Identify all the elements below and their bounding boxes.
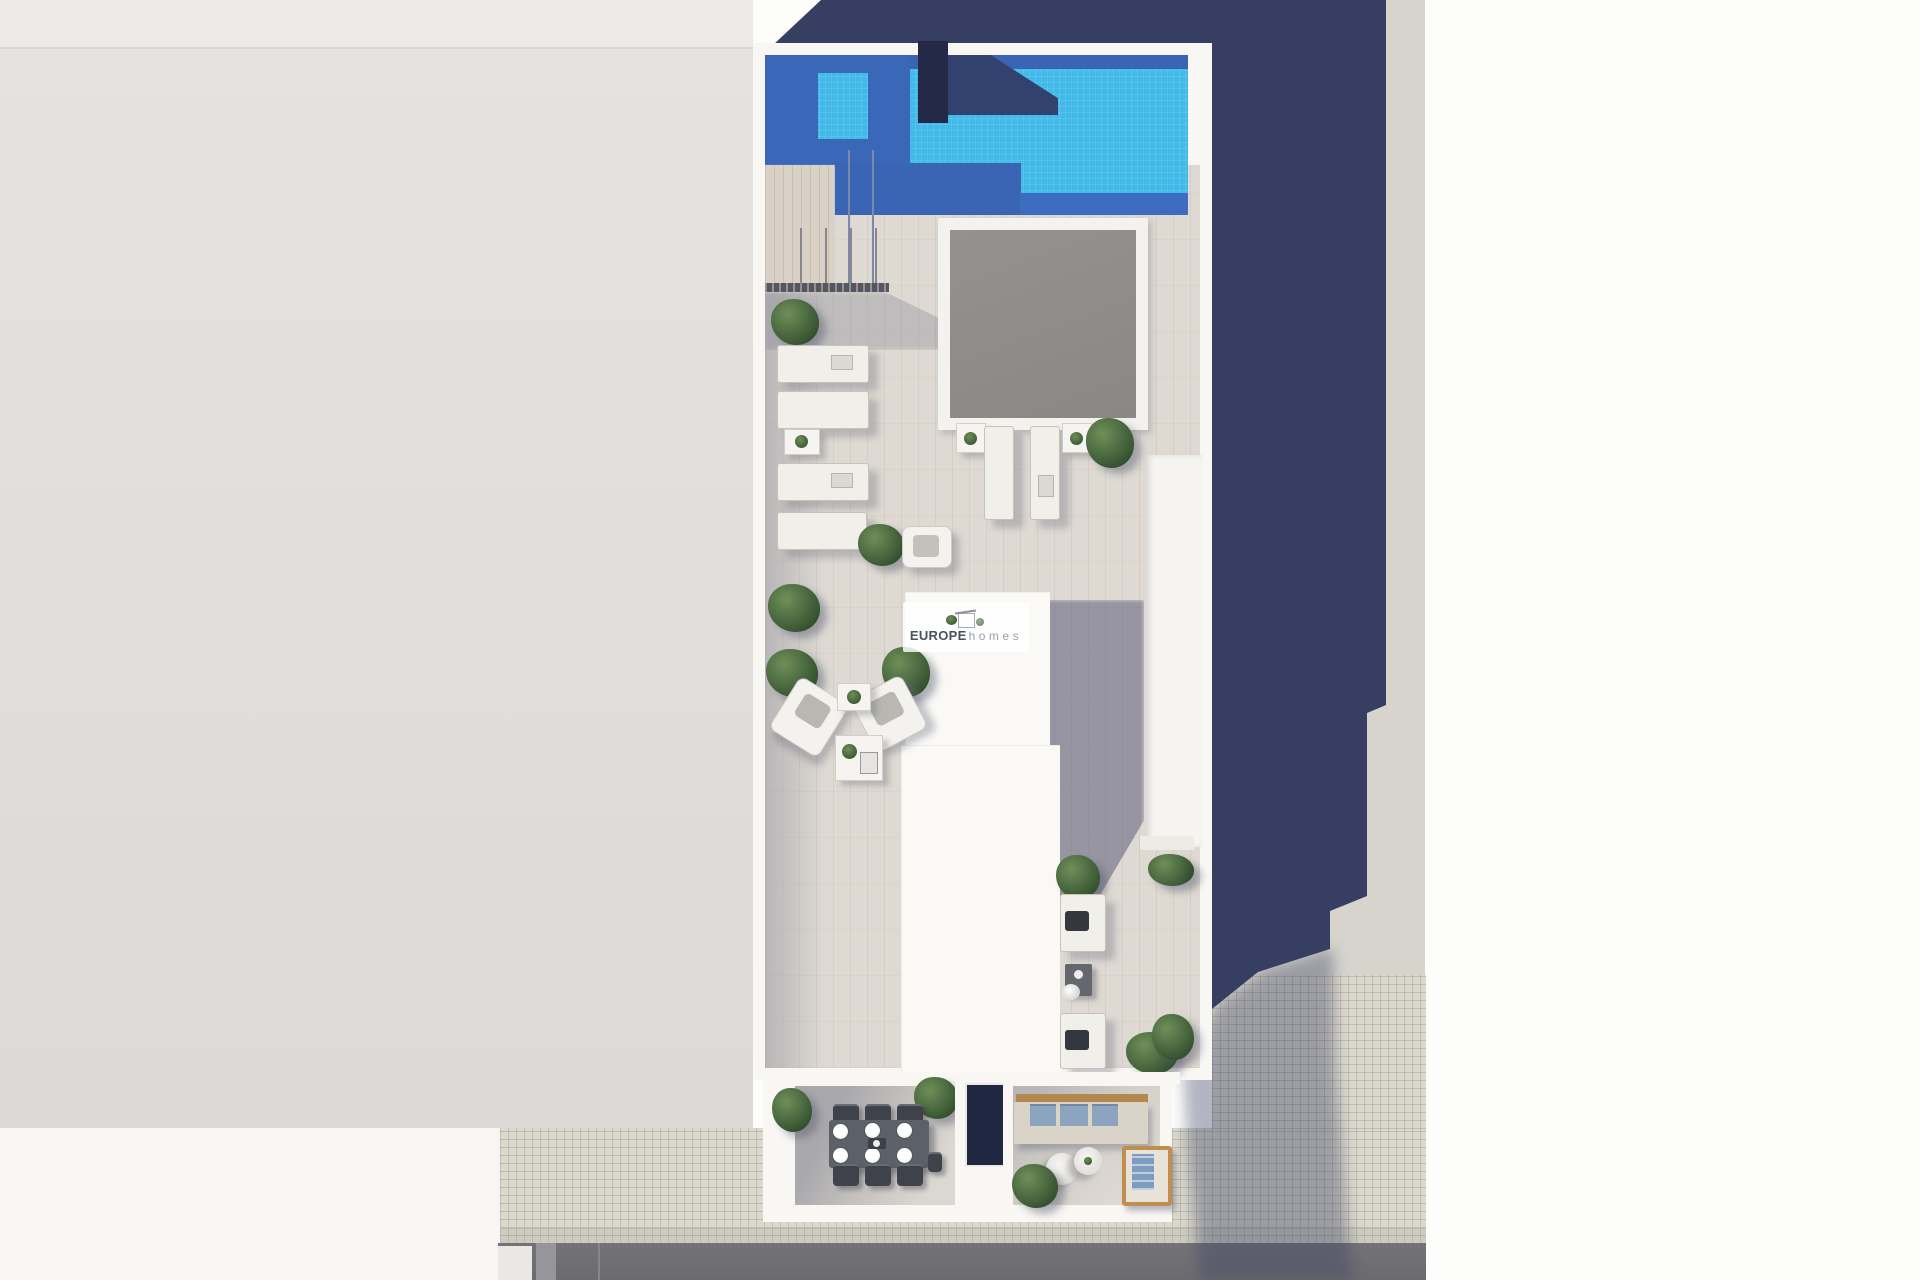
lounger-side-table (956, 423, 986, 453)
towel-on-lounger (831, 473, 853, 488)
balustrade-post-2 (825, 228, 827, 284)
low-table-with-decor (835, 735, 883, 781)
dining-chair (833, 1164, 859, 1186)
table-centerpiece (868, 1138, 886, 1149)
towel-on-lounger (1038, 475, 1054, 497)
right-bench-endcap (1140, 836, 1194, 850)
chair-seat-cushion (867, 690, 906, 727)
dining-head-chair (928, 1152, 942, 1172)
dining-chair (865, 1164, 891, 1186)
towel-on-lounger (831, 355, 853, 370)
dining-table (829, 1120, 929, 1168)
pool-shadow-bottom-band (1020, 193, 1188, 215)
sofa-cushion-blue (1030, 1104, 1056, 1126)
white-flower-pot (1062, 984, 1080, 1000)
plant-bush (1148, 854, 1194, 886)
potted-plant (1070, 432, 1083, 445)
potted-plant (795, 435, 808, 448)
tray-decor (860, 752, 878, 774)
armchair-blue-cushion (1132, 1154, 1154, 1190)
day-chair (1060, 894, 1106, 952)
pool-shadow-left-block (765, 55, 818, 167)
sun-lounger (777, 391, 869, 429)
cup-on-table (1074, 970, 1083, 979)
coffee-table (837, 683, 871, 711)
plant-bush (1056, 855, 1100, 899)
balustrade-post-4 (875, 228, 877, 284)
table-decor (1084, 1157, 1092, 1165)
rooftop-aerial-render: EUROPEhomes (0, 0, 1920, 1280)
round-coffee-table (1074, 1147, 1102, 1175)
sun-lounger (1030, 426, 1060, 520)
leaf-icon (976, 618, 984, 626)
sofa-cushion-blue (1092, 1104, 1118, 1126)
watermark-text: EUROPEhomes (910, 629, 1022, 643)
dark-pillow (1065, 1030, 1089, 1050)
potted-plant (847, 690, 861, 704)
plant-bush (1152, 1014, 1194, 1060)
plant-bush (772, 1088, 812, 1132)
skylight-glass (950, 230, 1136, 418)
watermark-logo (946, 611, 986, 629)
balustrade-rail-bar (765, 283, 889, 292)
lightwell-void (965, 1083, 1006, 1167)
chair-seat-cushion (913, 535, 939, 557)
pool-ladder-rail-2 (872, 150, 874, 284)
plant-bush (768, 584, 820, 632)
day-chair (1060, 1013, 1106, 1069)
stair-housing-main (901, 745, 1060, 1075)
pool-steps-shadow (835, 163, 1021, 215)
dining-chair (897, 1164, 923, 1186)
balustrade-post-3 (850, 228, 852, 284)
right-bench-band (1147, 455, 1202, 847)
leaf-icon (946, 615, 957, 625)
house-icon (958, 613, 975, 628)
watermark-suffix: homes (969, 629, 1023, 643)
sun-lounger (984, 426, 1014, 520)
lounge-chair (902, 526, 952, 568)
plant-bush (1086, 418, 1134, 468)
lounger-side-table (784, 429, 820, 455)
wood-armchair (1122, 1146, 1172, 1206)
sun-lounger (777, 345, 869, 383)
pool-shower-column (918, 41, 948, 123)
sofa-cushion-blue (1060, 1104, 1088, 1126)
dark-pillow (1065, 911, 1089, 931)
pool-shadow-left-right (868, 69, 910, 167)
plant-bush (858, 524, 904, 566)
potted-plant (842, 744, 857, 759)
watermark-brand: EUROPE (910, 628, 967, 643)
plant-bush (1012, 1164, 1058, 1208)
outdoor-sofa (1014, 1102, 1148, 1144)
balustrade-post-1 (800, 228, 802, 284)
centerpiece-dish (873, 1140, 880, 1147)
watermark-europe-homes: EUROPEhomes (903, 602, 1029, 652)
potted-plant (964, 432, 977, 445)
sun-lounger (777, 512, 867, 550)
plant-bush (771, 299, 819, 345)
sun-lounger (777, 463, 869, 501)
chair-seat-cushion (793, 692, 832, 730)
